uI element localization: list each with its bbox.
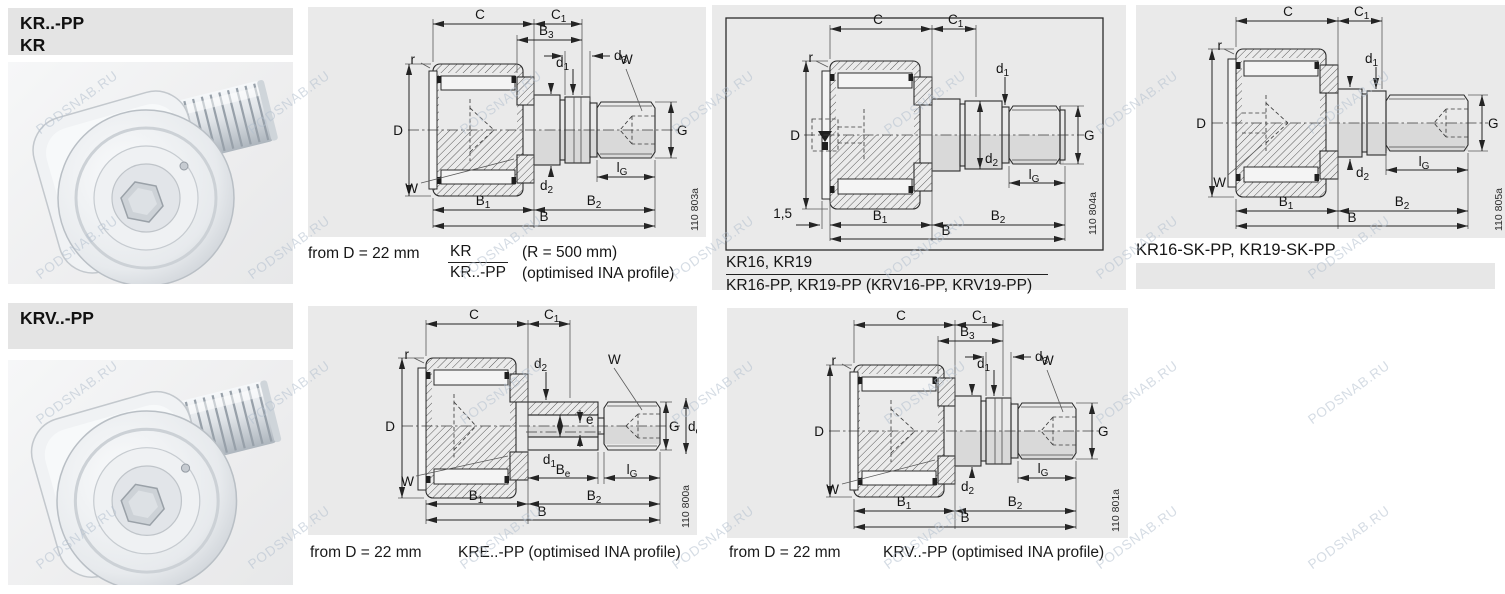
dim-label-w-right: W xyxy=(620,52,633,67)
dim-label-g: G xyxy=(669,419,680,434)
kr-cross-section xyxy=(405,19,680,228)
dim-label-d2: d2 xyxy=(1356,165,1370,183)
krv-bearing-illustration xyxy=(8,360,293,585)
dim-label-d-big: D xyxy=(1196,116,1206,131)
figure-krv-drawing: C C1 B3 d3 d1 W r D W d2 lG G B1 B2 B 11… xyxy=(727,308,1128,538)
dim-label-c: C xyxy=(475,7,485,22)
caption-prefix: from D = 22 mm xyxy=(729,544,841,562)
dim-label-r: r xyxy=(1218,38,1223,53)
dim-label-d1: d1 xyxy=(977,356,991,374)
dim-label-g: G xyxy=(1488,116,1499,131)
dim-label-lg: lG xyxy=(1029,167,1040,185)
dim-label-w-left: W xyxy=(401,474,414,489)
kr16sk-cross-section xyxy=(1208,17,1488,229)
dim-label-b2: B2 xyxy=(587,488,602,506)
caption-line1: KR16, KR19 xyxy=(726,254,1048,275)
dim-label-b3: B3 xyxy=(960,324,975,342)
dim-label-d1: d1 xyxy=(996,61,1010,79)
dim-label-d-big: D xyxy=(814,424,824,439)
figure-kr16sk-caption: KR16-SK-PP, KR19-SK-PP xyxy=(1136,241,1336,260)
dim-label-b: B xyxy=(537,504,546,519)
caption-text: KRE..-PP (optimised INA profile) xyxy=(458,544,681,562)
caption-prefix: from D = 22 mm xyxy=(308,245,420,263)
caption-notes: (R = 500 mm) (optimised INA profile) xyxy=(522,243,674,285)
panel-bottom-band xyxy=(1136,263,1495,289)
kr-header-line2: KR xyxy=(20,34,281,56)
figure-kre-drawing: C C1 r D d2 e d1 W W G de Be lG B1 B2 B … xyxy=(308,306,697,535)
dim-label-g: G xyxy=(1098,424,1109,439)
dim-label-lg: lG xyxy=(1419,154,1430,172)
dim-label-c: C xyxy=(469,307,479,322)
dim-label-d1: d1 xyxy=(556,55,570,73)
figure-kr16-caption: KR16, KR19 KR16-PP, KR19-PP (KRV16-PP, K… xyxy=(726,254,1048,295)
dim-label-b: B xyxy=(941,223,950,238)
dim-label-r: r xyxy=(809,50,814,65)
dim-label-b: B xyxy=(539,209,548,224)
caption-text: KRV..-PP (optimised INA profile) xyxy=(883,544,1104,562)
figure-kr-drawing: C C1 B3 d3 d1 W r D W d2 lG G B1 B2 B 11… xyxy=(308,7,706,237)
krv-section-header: KRV..-PP xyxy=(8,303,293,349)
figure-number: 110 803a xyxy=(689,188,701,231)
caption-note2: (optimised INA profile) xyxy=(522,264,674,285)
dim-label-w-right: W xyxy=(608,352,621,367)
figure-kr-caption: from D = 22 mm KR KR..-PP (R = 500 mm) (… xyxy=(308,243,706,289)
dim-label-c: C xyxy=(1283,5,1293,19)
dim-label-c: C xyxy=(896,308,906,323)
dim-label-c1: C1 xyxy=(948,12,964,30)
dim-label-w-left: W xyxy=(826,482,839,497)
kr-section-header: KR..-PP KR xyxy=(8,8,293,55)
figure-krv-caption: from D = 22 mm KRV..-PP (optimised INA p… xyxy=(727,544,1128,568)
figure-number: 110 805a xyxy=(1493,188,1505,231)
dim-label-r: r xyxy=(411,52,416,67)
dim-label-c1: C1 xyxy=(972,308,988,326)
caption-line2: KR16-PP, KR19-PP (KRV16-PP, KRV19-PP) xyxy=(726,275,1048,295)
dim-label-c1: C1 xyxy=(551,7,567,25)
krv-bearing-photo xyxy=(8,360,293,585)
dim-label-d1: d1 xyxy=(1365,51,1379,69)
dim-label-b3: B3 xyxy=(539,23,554,41)
caption-fraction-top: KR xyxy=(448,243,508,263)
dim-label-e: e xyxy=(586,412,594,427)
figure-number: 110 800a xyxy=(680,485,692,528)
dim-label-b: B xyxy=(1347,210,1356,225)
kr-bearing-photo xyxy=(8,62,293,284)
dim-label-lg: lG xyxy=(627,462,638,480)
dim-label-w-left: W xyxy=(405,181,418,196)
kr-bearing-illustration xyxy=(8,62,293,284)
krv-cross-section xyxy=(826,320,1101,529)
figure-number: 110 804a xyxy=(1087,192,1099,235)
caption-prefix: from D = 22 mm xyxy=(310,544,422,562)
caption-line1: KR16-SK-PP, KR19-SK-PP xyxy=(1136,241,1336,259)
dim-label-lg: lG xyxy=(617,160,628,178)
dim-label-b2: B2 xyxy=(991,208,1006,226)
caption-designation-fraction: KR KR..-PP xyxy=(448,243,508,282)
dim-label-d2: d2 xyxy=(961,479,975,497)
caption-fraction-bottom: KR..-PP xyxy=(448,263,508,282)
figure-kr16-drawing: C C1 d1 r D d2 G lG 1,5 B1 B2 B 110 804a… xyxy=(712,5,1126,290)
krv-header-line1: KRV..-PP xyxy=(20,307,281,329)
dim-label-c: C xyxy=(873,12,883,27)
catalog-page: PODSNAB.RU xyxy=(0,0,1505,594)
dim-label-lg: lG xyxy=(1038,461,1049,479)
dim-label-d1: d1 xyxy=(543,452,557,470)
dim-label-g: G xyxy=(1084,128,1095,143)
dim-label-d2: d2 xyxy=(534,356,548,374)
dim-label-de: de xyxy=(688,419,697,437)
caption-note1: (R = 500 mm) xyxy=(522,243,674,264)
dim-label-b2: B2 xyxy=(1395,194,1410,212)
dim-label-d-big: D xyxy=(393,123,403,138)
dim-label-b: B xyxy=(960,510,969,525)
dim-label-r: r xyxy=(405,347,410,362)
dim-label-r: r xyxy=(832,353,837,368)
dim-label-w-right: W xyxy=(1041,353,1054,368)
dim-label-chamfer: 1,5 xyxy=(773,206,792,221)
dim-label-d2: d2 xyxy=(540,178,554,196)
figure-number: 110 801a xyxy=(1110,489,1122,532)
dim-label-c1: C1 xyxy=(544,307,560,325)
dim-label-w: W xyxy=(1213,175,1226,190)
figure-kr16sk-drawing: C C1 d1 r D W d2 G lG B1 B2 B 110 805a xyxy=(1136,5,1505,238)
dim-label-b2: B2 xyxy=(1008,494,1023,512)
kr-header-line1: KR..-PP xyxy=(20,12,281,34)
dim-label-b1: B1 xyxy=(873,208,888,226)
dim-label-d-big: D xyxy=(790,128,800,143)
kre-cross-section xyxy=(398,320,686,524)
dim-label-d-big: D xyxy=(385,419,395,434)
dim-label-c1: C1 xyxy=(1354,5,1370,22)
dim-label-be: Be xyxy=(556,462,571,480)
dim-label-b2: B2 xyxy=(587,193,602,211)
dim-label-g: G xyxy=(677,123,688,138)
figure-kre-caption: from D = 22 mm KRE..-PP (optimised INA p… xyxy=(308,544,697,568)
